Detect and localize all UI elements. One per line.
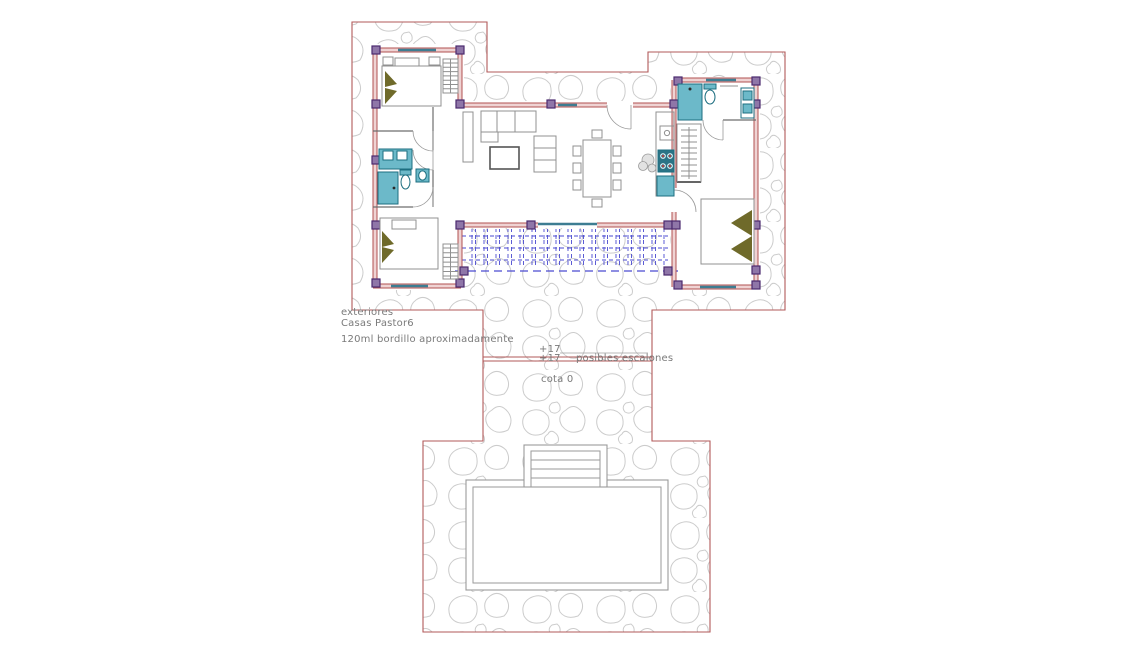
column xyxy=(372,279,380,287)
dining-chair xyxy=(573,146,581,156)
label-level-lower: +17 xyxy=(539,354,561,364)
column xyxy=(372,46,380,54)
column xyxy=(674,281,682,289)
column xyxy=(664,221,672,229)
dining-chair xyxy=(573,163,581,173)
dining-chair xyxy=(613,146,621,156)
dining-chair xyxy=(613,163,621,173)
pool xyxy=(466,480,668,590)
toilet-tank xyxy=(704,84,716,89)
label-bordillo-note: 120ml bordillo aproximadamente xyxy=(341,335,514,345)
sofa xyxy=(481,111,536,132)
stove xyxy=(658,150,674,172)
label-exteriores: exteriores xyxy=(341,308,393,318)
bed xyxy=(382,66,441,106)
pergola-rafters xyxy=(464,229,666,267)
toilet-tank xyxy=(400,170,411,175)
column xyxy=(372,221,380,229)
column xyxy=(547,100,555,108)
toilet xyxy=(401,175,410,189)
sink xyxy=(397,151,407,160)
dining-chair xyxy=(573,180,581,190)
tv-sideboard xyxy=(463,112,473,162)
dining-chair xyxy=(592,199,602,207)
dining-chair xyxy=(592,130,602,138)
column xyxy=(527,221,535,229)
loveseat xyxy=(534,136,556,172)
label-ground-level: cota 0 xyxy=(541,375,573,385)
column xyxy=(664,267,672,275)
dishwasher xyxy=(657,176,674,196)
shower-drain xyxy=(689,88,692,91)
shower-valve xyxy=(393,187,396,190)
pillow xyxy=(392,220,416,229)
basin xyxy=(743,104,752,113)
basin xyxy=(743,91,752,100)
dining-chair xyxy=(613,180,621,190)
sink xyxy=(383,151,393,160)
nightstand xyxy=(383,57,393,65)
dining-table xyxy=(583,140,611,197)
coffee-table xyxy=(490,147,519,169)
column xyxy=(460,267,468,275)
column xyxy=(456,46,464,54)
column xyxy=(752,281,760,289)
label-steps-note: posibles escalones xyxy=(576,354,673,364)
sofa-chaise xyxy=(481,132,498,142)
column xyxy=(456,100,464,108)
pergola xyxy=(455,229,678,271)
column xyxy=(456,221,464,229)
label-project-name: Casas Pastor6 xyxy=(341,319,414,329)
bidet-bowl xyxy=(419,171,427,180)
column xyxy=(672,221,680,229)
column xyxy=(372,100,380,108)
column xyxy=(752,266,760,274)
floor-plan-page: exteriores Casas Pastor6 120ml bordillo … xyxy=(0,0,1130,665)
toilet xyxy=(705,90,715,104)
column xyxy=(456,279,464,287)
column xyxy=(670,100,678,108)
column xyxy=(752,77,760,85)
floor-plan-drawing xyxy=(0,0,1130,665)
nightstand xyxy=(429,57,440,65)
